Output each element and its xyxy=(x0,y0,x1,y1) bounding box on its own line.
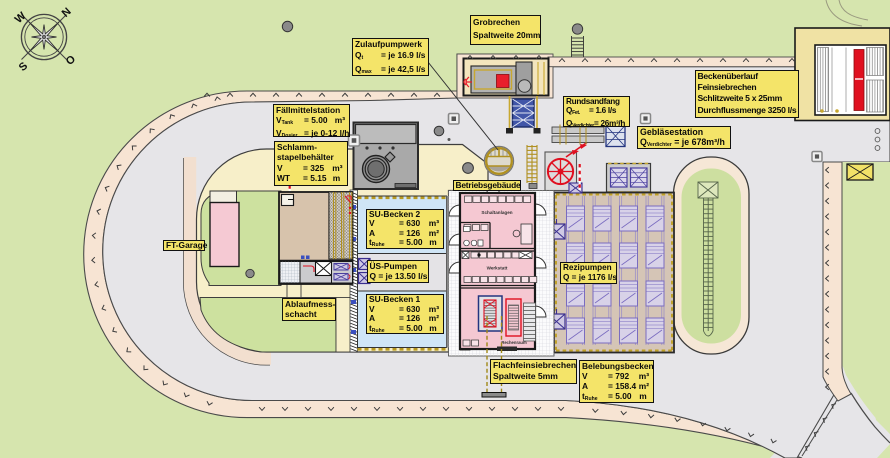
svg-text:Werkstatt: Werkstatt xyxy=(487,266,508,271)
svg-text:Rechenraum: Rechenraum xyxy=(501,340,527,345)
svg-text:Schaltanlagen: Schaltanlagen xyxy=(481,210,512,215)
